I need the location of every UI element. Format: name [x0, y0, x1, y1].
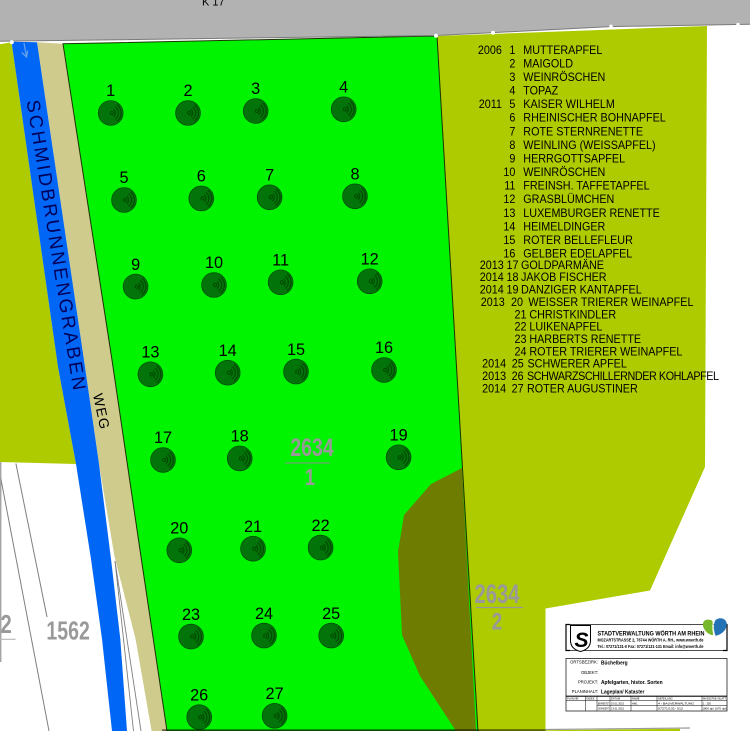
- svg-text:Tel.: 07271/131-0 Fax: 07271/1: Tel.: 07271/131-0 Fax: 07271/131-131 Ema…: [598, 644, 704, 649]
- svg-text:6: 6: [197, 168, 206, 186]
- svg-text:4: 4: [339, 79, 348, 97]
- svg-text:WEINLING (WEISSAPFEL): WEINLING (WEISSAPFEL): [523, 140, 656, 152]
- svg-text:LUIKENAPFEL: LUIKENAPFEL: [529, 321, 602, 333]
- svg-text:22: 22: [312, 517, 330, 535]
- svg-text:3: 3: [509, 72, 515, 84]
- svg-text:19: 19: [390, 427, 408, 445]
- svg-text:GRASBLÜMCHEN: GRASBLÜMCHEN: [523, 194, 614, 206]
- svg-text:2014: 2014: [480, 284, 504, 296]
- svg-text:2013: 2013: [482, 371, 506, 383]
- svg-text:25: 25: [322, 605, 340, 623]
- svg-text:19: 19: [506, 284, 518, 296]
- svg-text:ROTER TRIERER WEINAPFEL: ROTER TRIERER WEINAPFEL: [529, 346, 682, 358]
- svg-text:2: 2: [492, 608, 502, 635]
- svg-text:Apfelgarten, histor. Sorten: Apfelgarten, histor. Sorten: [601, 680, 663, 686]
- svg-text:15: 15: [287, 341, 305, 359]
- svg-text:16: 16: [375, 339, 393, 357]
- svg-text:PLAN-NR.: PLAN-NR.: [567, 696, 579, 700]
- svg-text:2: 2: [1, 610, 12, 639]
- svg-text:OBJEKT:: OBJEKT:: [581, 670, 598, 675]
- svg-text:CHRISTKINDLER: CHRISTKINDLER: [529, 309, 616, 321]
- svg-text:9: 9: [509, 153, 515, 165]
- svg-text:MOZARTSTRASSE 2, 76744 WÖRTH A: MOZARTSTRASSE 2, 76744 WÖRTH A. RH., www…: [598, 636, 704, 642]
- svg-text:20: 20: [511, 297, 523, 309]
- svg-text:PLANINHALT:: PLANINHALT:: [572, 689, 598, 694]
- svg-text:2014: 2014: [482, 358, 506, 370]
- svg-text:14: 14: [219, 342, 237, 360]
- svg-text:WEINRÖSCHEN: WEINRÖSCHEN: [523, 167, 605, 179]
- svg-text:1: 1: [305, 465, 315, 490]
- svg-text:27: 27: [512, 383, 524, 395]
- svg-text:NAME: NAME: [632, 696, 640, 700]
- svg-text:3: 3: [251, 80, 260, 98]
- svg-text:K 17: K 17: [202, 0, 225, 9]
- svg-text:ORTSBEZIRK:: ORTSBEZIRK:: [570, 660, 598, 665]
- svg-text:17: 17: [506, 260, 518, 272]
- svg-text:ROTER AUGUSTINER: ROTER AUGUSTINER: [527, 383, 638, 395]
- svg-text:WEISSER TRIERER WEINAPFEL: WEISSER TRIERER WEINAPFEL: [528, 297, 693, 309]
- svg-text:MASSSTAB / BLATT: MASSSTAB / BLATT: [703, 696, 726, 700]
- svg-text:10: 10: [503, 167, 515, 179]
- svg-text:07271/131- 512: 07271/131- 512: [658, 707, 684, 711]
- svg-text:ROTER BELLEFLEUR: ROTER BELLEFLEUR: [523, 235, 633, 247]
- svg-text:4 - BAUVERWALTUNG: 4 - BAUVERWALTUNG: [658, 701, 694, 705]
- svg-text:MUTTERAPFEL: MUTTERAPFEL: [523, 44, 602, 56]
- svg-text:4: 4: [509, 85, 515, 97]
- svg-text:1562: 1562: [46, 616, 89, 645]
- svg-text:GEÄNDERT: GEÄNDERT: [598, 707, 609, 711]
- svg-text:5: 5: [119, 169, 128, 187]
- svg-text:22: 22: [514, 321, 526, 333]
- svg-text:18: 18: [231, 428, 249, 446]
- svg-text:7: 7: [265, 167, 274, 185]
- svg-text:2014: 2014: [480, 272, 504, 284]
- svg-text:JAKOB FISCHER: JAKOB FISCHER: [521, 272, 607, 284]
- svg-text:STADTVERWALTUNG WÖRTH AM RHEIN: STADTVERWALTUNG WÖRTH AM RHEIN: [598, 629, 705, 638]
- svg-text:26: 26: [190, 686, 208, 704]
- svg-text:WEINRÖSCHEN: WEINRÖSCHEN: [523, 72, 605, 84]
- svg-text:13: 13: [141, 344, 159, 362]
- svg-text:2634: 2634: [474, 579, 520, 610]
- svg-text:TOPAZ: TOPAZ: [523, 85, 558, 97]
- svg-text:27: 27: [266, 685, 284, 703]
- svg-text:INDEX: INDEX: [587, 696, 595, 700]
- svg-text:14: 14: [503, 221, 515, 233]
- svg-text:2014: 2014: [482, 383, 506, 395]
- svg-text:13: 13: [503, 207, 515, 219]
- svg-text:PROJEKT:: PROJEKT:: [578, 680, 598, 685]
- svg-text:15: 15: [503, 235, 515, 247]
- svg-text:2011: 2011: [479, 99, 502, 111]
- svg-text:24: 24: [514, 346, 526, 358]
- svg-text:11: 11: [272, 252, 289, 270]
- svg-text:9: 9: [131, 256, 140, 274]
- svg-text:10.01.2015: 10.01.2015: [611, 701, 625, 705]
- svg-text:HARBERTS RENETTE: HARBERTS RENETTE: [529, 334, 641, 346]
- svg-text:2013: 2013: [480, 260, 504, 272]
- svg-text:6: 6: [509, 112, 515, 124]
- svg-text:21: 21: [514, 309, 526, 321]
- svg-text:20: 20: [170, 520, 188, 538]
- svg-text:2: 2: [509, 58, 515, 70]
- svg-text:2: 2: [183, 82, 192, 100]
- svg-text:GOLDPARMÄNE: GOLDPARMÄNE: [521, 260, 604, 272]
- svg-text:18: 18: [506, 272, 518, 284]
- svg-text:12: 12: [503, 194, 515, 206]
- svg-text:24: 24: [255, 605, 273, 623]
- svg-text:2006: 2006: [478, 44, 502, 56]
- svg-text:SCHWARZSCHILLERNDER KOHLAPFEL: SCHWARZSCHILLERNDER KOHLAPFEL: [527, 371, 719, 383]
- svg-text:SCHWERER APFEL: SCHWERER APFEL: [527, 358, 626, 370]
- svg-text:25: 25: [512, 358, 524, 370]
- svg-text:26: 26: [512, 371, 524, 383]
- svg-text:BEARBEITET: BEARBEITET: [598, 701, 609, 705]
- svg-text:21: 21: [244, 518, 262, 536]
- svg-text:1: 1: [509, 44, 515, 56]
- svg-text:FREINSH. TAFFETAPFEL: FREINSH. TAFFETAPFEL: [523, 180, 649, 192]
- svg-text:12: 12: [361, 251, 379, 269]
- svg-text:HEIMELDINGER: HEIMELDINGER: [523, 221, 605, 233]
- svg-text:(800 dpi 1670 dpi): (800 dpi 1670 dpi): [703, 707, 727, 711]
- svg-text:8: 8: [350, 166, 359, 184]
- svg-text:2013: 2013: [481, 297, 505, 309]
- svg-text:HERRGOTTSAPFEL: HERRGOTTSAPFEL: [523, 153, 625, 165]
- svg-text:MAIGOLD: MAIGOLD: [523, 58, 573, 70]
- svg-text:2634: 2634: [290, 434, 334, 462]
- svg-text:13.01.2015: 13.01.2015: [611, 707, 625, 711]
- svg-text:Büchelberg: Büchelberg: [601, 660, 628, 666]
- svg-text:10: 10: [205, 254, 223, 272]
- svg-text:17: 17: [154, 429, 172, 447]
- svg-text:HML: HML: [632, 701, 638, 705]
- svg-text:23: 23: [182, 606, 200, 624]
- svg-text:DANZIGER KANTAPFEL: DANZIGER KANTAPFEL: [521, 284, 642, 296]
- svg-text:1 : 250: 1 : 250: [703, 701, 711, 705]
- svg-text:23: 23: [514, 334, 526, 346]
- svg-text:8: 8: [509, 140, 515, 152]
- svg-text:DATUM: DATUM: [611, 696, 620, 700]
- svg-text:LUXEMBURGER RENETTE: LUXEMBURGER RENETTE: [523, 207, 660, 219]
- svg-text:RHEINISCHER BOHNAPFEL: RHEINISCHER BOHNAPFEL: [523, 112, 665, 124]
- svg-text:ABTEILUNG: ABTEILUNG: [658, 696, 673, 700]
- svg-text:1: 1: [106, 82, 115, 100]
- svg-text:ROTE STERNRENETTE: ROTE STERNRENETTE: [523, 126, 643, 138]
- svg-text:KAISER WILHELM: KAISER WILHELM: [523, 99, 615, 111]
- svg-text:Lageplan/ Kataster: Lageplan/ Kataster: [601, 690, 645, 696]
- svg-text:11: 11: [504, 180, 515, 192]
- svg-text:S: S: [575, 629, 589, 652]
- svg-text:7: 7: [509, 126, 515, 138]
- svg-text:5: 5: [509, 99, 515, 111]
